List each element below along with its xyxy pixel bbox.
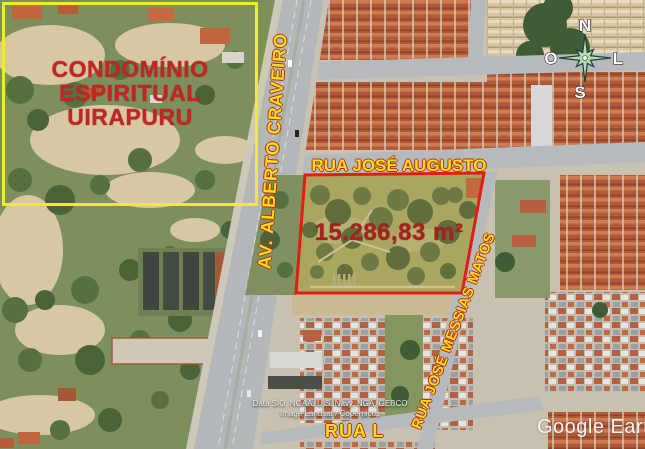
compass-east-label: L (613, 49, 623, 68)
street-label-rua-jose-augusto: RUA JOSÉ AUGUSTO (311, 156, 486, 176)
condominio-highlight-box: CONDOMÍNIO ESPIRITUAL UIRAPURU (2, 2, 258, 206)
map-attribution: Data SIO, NOAA, U.S. Navy, NGA, GEBCO Im… (235, 399, 425, 418)
compass-rose: N S O L (535, 5, 635, 105)
compass-south-label: S (574, 83, 585, 102)
compass-north-label: N (579, 16, 591, 35)
google-earth-watermark: Google Earth (537, 416, 645, 439)
condominio-label-line2: ESPIRITUAL (5, 81, 255, 105)
street-label-rua-l: RUA L (325, 421, 384, 442)
attribution-line2: Image Landsat / Copernicus (235, 409, 425, 419)
compass-west-label: O (544, 49, 557, 68)
compass-center (583, 56, 588, 61)
condominio-label-line1: CONDOMÍNIO (5, 57, 255, 81)
parcel-area-label: 15.286,83 m² (315, 219, 464, 247)
condominio-label-line3: UIRAPURU (5, 105, 255, 129)
annotated-satellite-map[interactable]: CONDOMÍNIO ESPIRITUAL UIRAPURU AV. ALBER… (0, 0, 645, 449)
attribution-line1: Data SIO, NOAA, U.S. Navy, NGA, GEBCO (235, 399, 425, 409)
condominio-label: CONDOMÍNIO ESPIRITUAL UIRAPURU (5, 57, 255, 129)
